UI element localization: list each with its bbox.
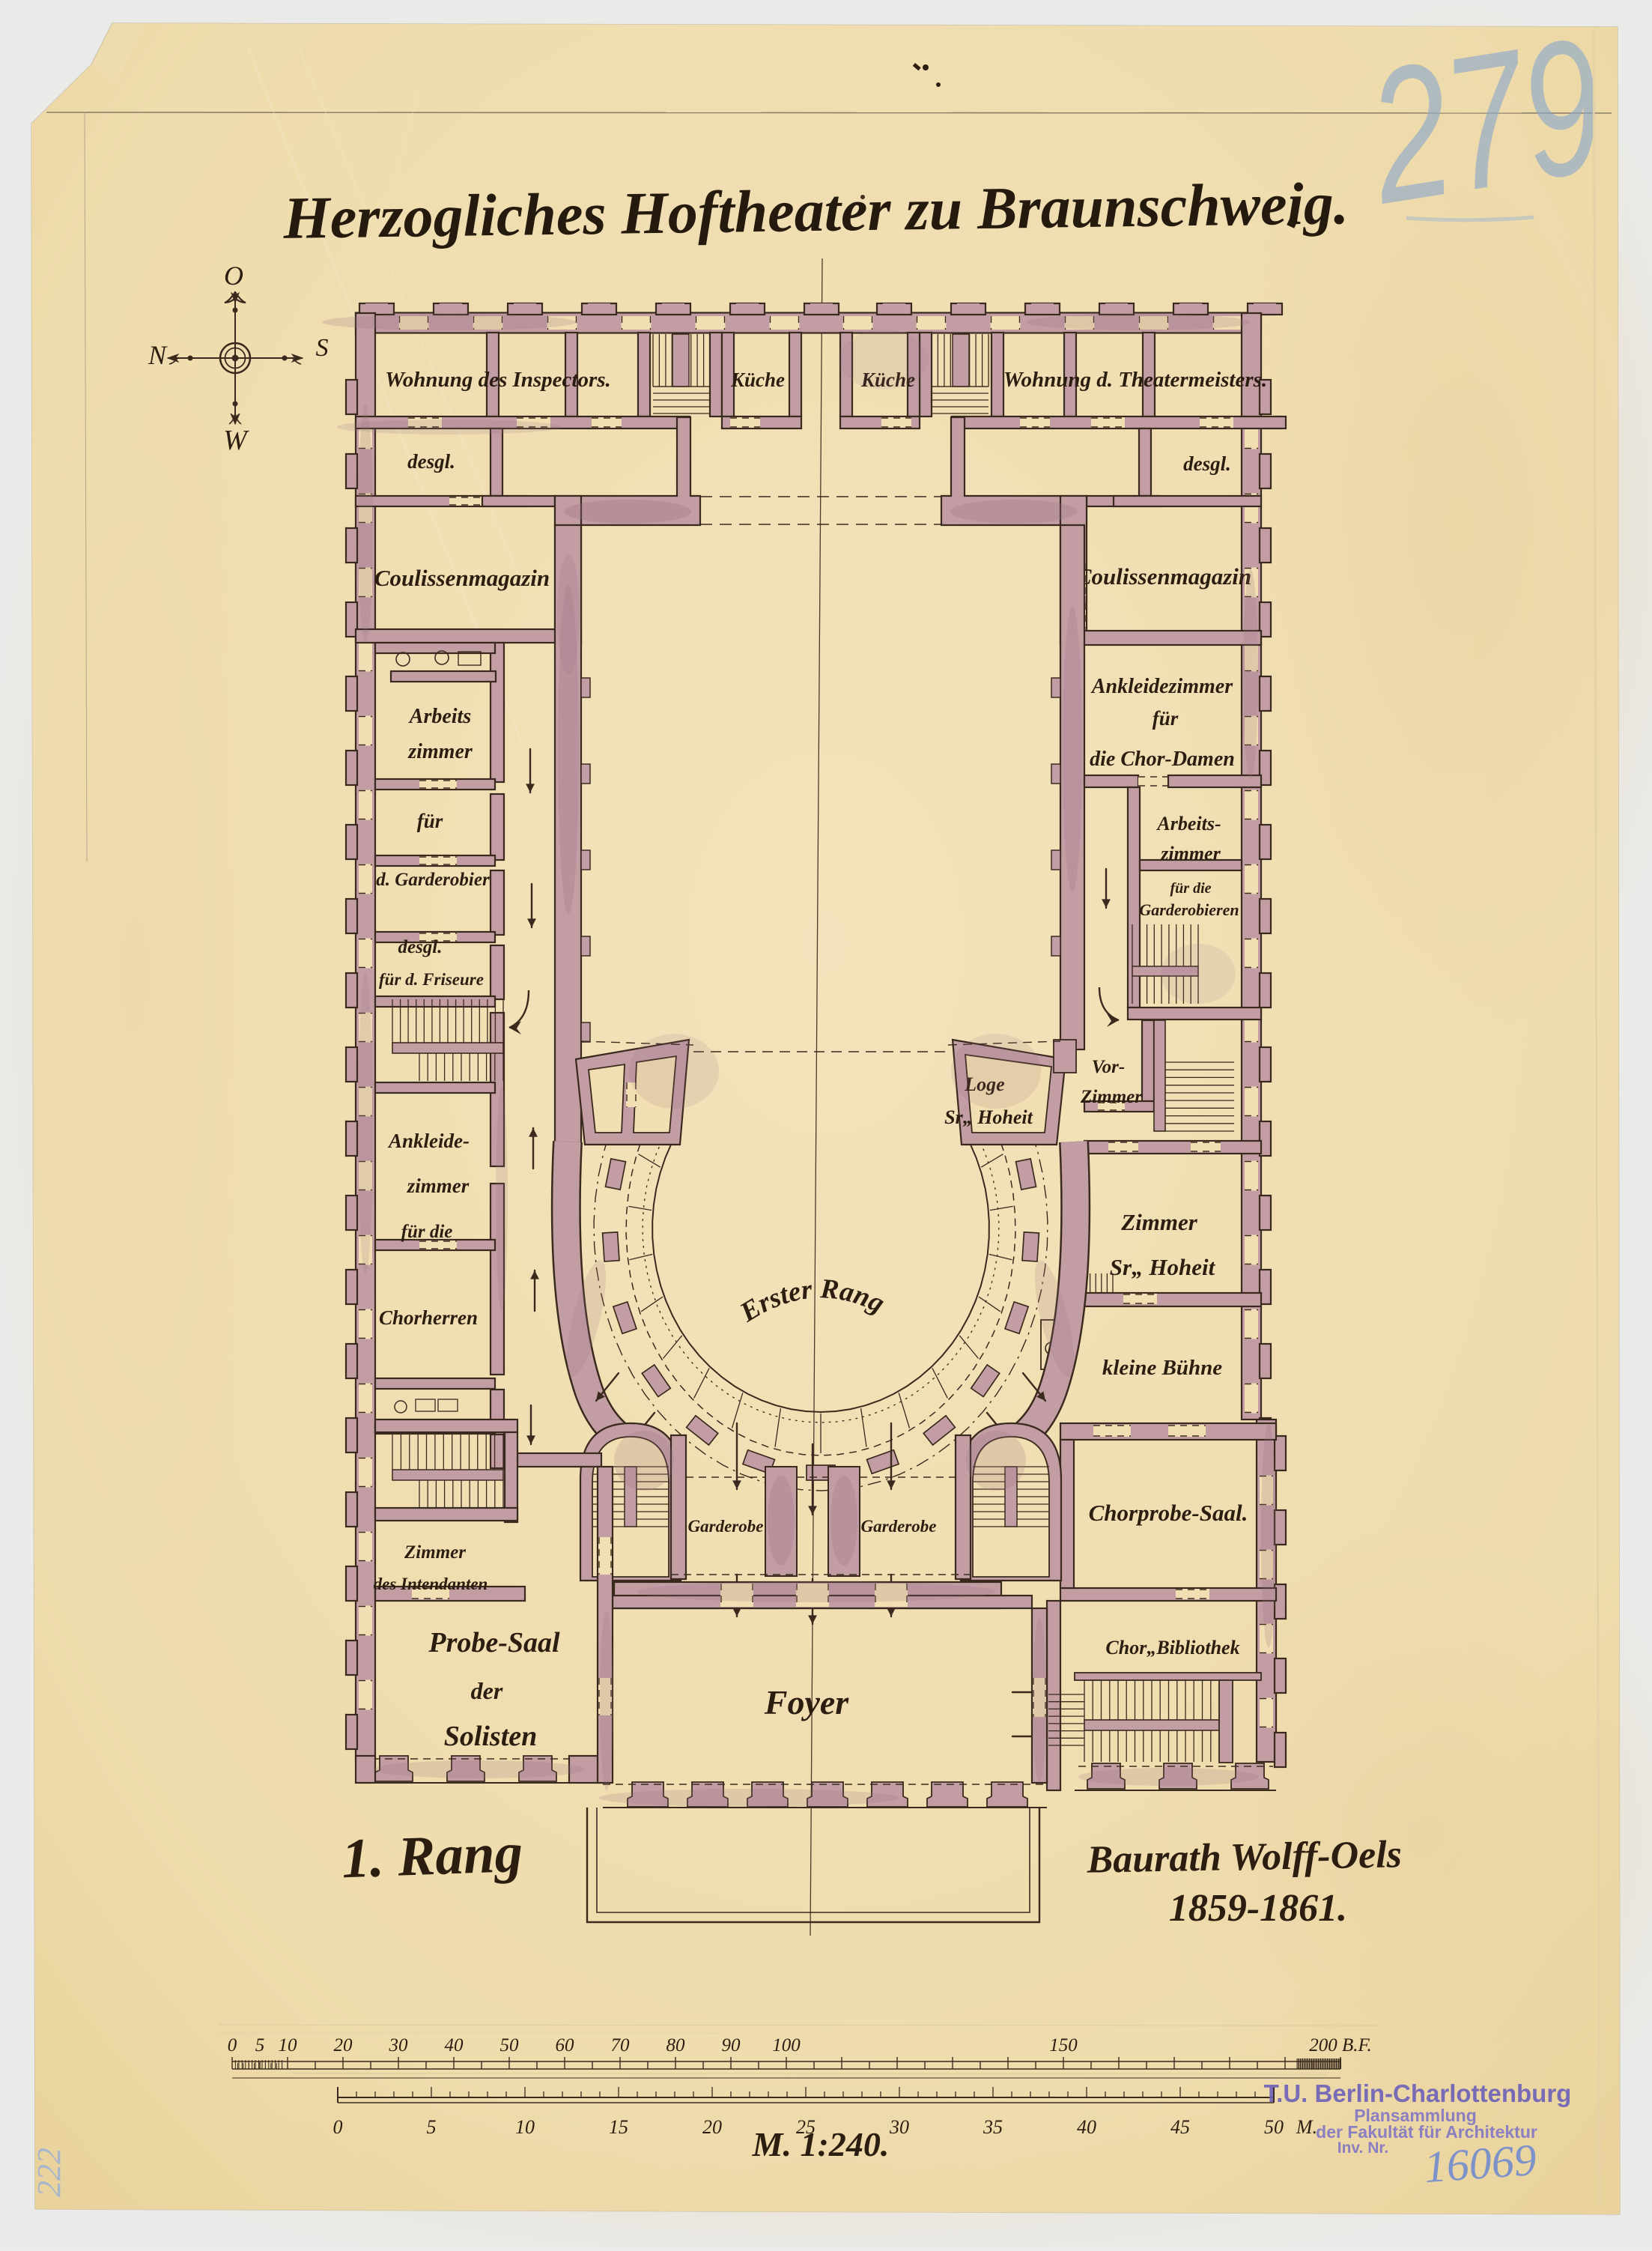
svg-text:Garderobe: Garderobe: [861, 1517, 937, 1536]
svg-text:16069: 16069: [1422, 2135, 1537, 2192]
svg-text:Chorprobe-Saal.: Chorprobe-Saal.: [1089, 1500, 1248, 1526]
svg-text:Chor„Bibliothek: Chor„Bibliothek: [1105, 1637, 1239, 1658]
svg-text:Sr„ Hoheit: Sr„ Hoheit: [944, 1106, 1033, 1128]
svg-text:für: für: [1153, 707, 1179, 730]
svg-text:10: 10: [515, 2116, 535, 2138]
svg-text:1. Rang: 1. Rang: [341, 1822, 523, 1890]
svg-text:zimmer: zimmer: [407, 1175, 470, 1197]
svg-text:Chorherren: Chorherren: [379, 1306, 478, 1329]
svg-text:Garderobieren: Garderobieren: [1139, 900, 1239, 919]
svg-text:Zimmer: Zimmer: [1120, 1209, 1198, 1235]
svg-text:für die: für die: [1170, 880, 1212, 897]
svg-text:40: 40: [1077, 2116, 1096, 2138]
svg-text:Inv. Nr.: Inv. Nr.: [1337, 2139, 1388, 2157]
svg-text:Baurath Wolff-Oels: Baurath Wolff-Oels: [1086, 1833, 1402, 1881]
svg-text:Küche: Küche: [730, 369, 785, 391]
svg-text:100: 100: [772, 2035, 801, 2055]
svg-text:des Intendanten: des Intendanten: [374, 1575, 488, 1593]
svg-text:desgl.: desgl.: [398, 937, 442, 957]
svg-text:20: 20: [702, 2116, 722, 2138]
svg-text:222: 222: [31, 2148, 67, 2197]
svg-text:zimmer: zimmer: [1160, 843, 1221, 864]
svg-text:Foyer: Foyer: [764, 1683, 850, 1721]
svg-text:5: 5: [255, 2035, 265, 2055]
svg-text:0: 0: [228, 2035, 237, 2055]
svg-text:30: 30: [889, 2116, 909, 2138]
svg-text:M. 1:240.: M. 1:240.: [752, 2125, 890, 2163]
svg-text:279: 279: [1355, 0, 1616, 245]
svg-text:5: 5: [427, 2116, 437, 2138]
svg-text:Arbeits: Arbeits: [408, 705, 472, 728]
svg-text:1859-1861.: 1859-1861.: [1169, 1887, 1347, 1930]
svg-text:für: für: [417, 810, 443, 832]
svg-text:Coulissenmagazin: Coulissenmagazin: [374, 565, 550, 591]
svg-text:50: 50: [500, 2035, 520, 2055]
svg-text:20: 20: [334, 2035, 353, 2055]
svg-text:50: 50: [1264, 2116, 1284, 2138]
svg-text:Sr„ Hoheit: Sr„ Hoheit: [1110, 1254, 1216, 1280]
svg-text:40: 40: [445, 2035, 464, 2055]
svg-text:S: S: [316, 334, 329, 362]
svg-text:60: 60: [556, 2035, 575, 2055]
svg-text:T.U. Berlin-Charlottenburg: T.U. Berlin-Charlottenburg: [1264, 2079, 1572, 2107]
svg-text:desgl.: desgl.: [1183, 452, 1231, 475]
svg-text:desgl.: desgl.: [407, 450, 455, 473]
svg-text:Coulissenmagazin: Coulissenmagazin: [1076, 563, 1251, 590]
svg-text:d. Garderobier: d. Garderobier: [376, 870, 490, 890]
svg-text:W: W: [223, 425, 249, 456]
svg-text:35: 35: [983, 2116, 1003, 2138]
svg-text:Probe-Saal: Probe-Saal: [428, 1627, 560, 1658]
svg-text:15: 15: [609, 2116, 628, 2138]
svg-text:70: 70: [611, 2035, 631, 2055]
svg-text:10: 10: [279, 2035, 298, 2055]
svg-text:90: 90: [722, 2035, 741, 2055]
svg-text:M.: M.: [1296, 2116, 1317, 2138]
svg-text:N: N: [148, 340, 168, 370]
svg-text:Vor-: Vor-: [1092, 1057, 1125, 1077]
svg-text:45: 45: [1170, 2116, 1190, 2138]
svg-text:200 B.F.: 200 B.F.: [1309, 2035, 1372, 2055]
svg-text:Ankleide-: Ankleide-: [387, 1130, 470, 1152]
svg-text:kleine Bühne: kleine Bühne: [1102, 1356, 1222, 1380]
svg-text:Zimmer: Zimmer: [1080, 1087, 1142, 1107]
svg-text:zimmer: zimmer: [407, 740, 473, 763]
svg-text:80: 80: [666, 2035, 686, 2055]
svg-text:Zimmer: Zimmer: [404, 1542, 466, 1563]
svg-text:Wohnung d. Theatermeisters.: Wohnung d. Theatermeisters.: [1003, 368, 1267, 392]
svg-text:150: 150: [1049, 2035, 1078, 2055]
svg-text:Arbeits-: Arbeits-: [1156, 813, 1221, 834]
svg-text:für die: für die: [401, 1222, 453, 1242]
svg-text:Wohnung des Inspectors.: Wohnung des Inspectors.: [385, 368, 611, 392]
svg-text:für d. Friseure: für d. Friseure: [379, 970, 484, 989]
svg-text:Solisten: Solisten: [444, 1721, 538, 1752]
svg-text:der: der: [471, 1677, 503, 1704]
svg-text:O: O: [224, 261, 243, 291]
svg-text:30: 30: [389, 2035, 409, 2055]
svg-text:die Chor-Damen: die Chor-Damen: [1090, 748, 1235, 771]
svg-text:0: 0: [333, 2116, 343, 2138]
svg-text:Garderobe: Garderobe: [688, 1517, 764, 1536]
svg-text:Ankleidezimmer: Ankleidezimmer: [1090, 675, 1233, 698]
